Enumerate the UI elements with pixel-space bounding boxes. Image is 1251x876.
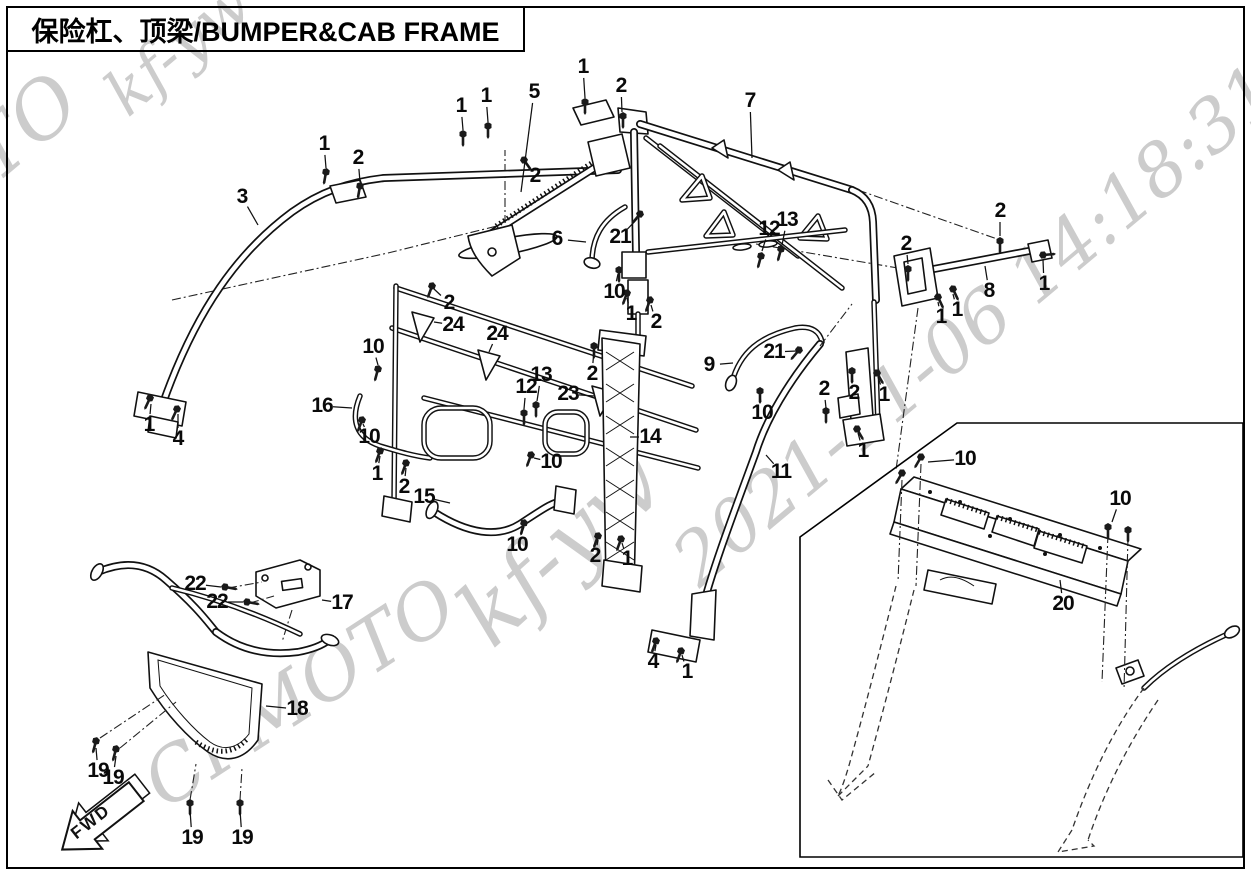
callout-1: 1 <box>626 302 637 326</box>
callout-3: 3 <box>237 185 248 209</box>
callout-10: 10 <box>362 335 383 359</box>
callout-8: 8 <box>984 279 995 303</box>
callout-11: 11 <box>771 460 791 484</box>
callout-1: 1 <box>481 84 492 108</box>
callout-2: 2 <box>651 310 662 334</box>
callout-22: 22 <box>184 572 205 596</box>
callout-10: 10 <box>358 425 379 449</box>
callout-1: 1 <box>622 547 633 571</box>
part-11-rear-pillar <box>648 304 852 662</box>
callout-2: 2 <box>590 544 601 568</box>
callout-2: 2 <box>849 381 860 405</box>
callout-21: 21 <box>763 340 784 364</box>
callout-14: 14 <box>639 425 660 449</box>
title-box: 保险杠、顶梁/BUMPER&CAB FRAME <box>6 6 525 52</box>
callout-1: 1 <box>879 383 890 407</box>
callout-10: 10 <box>603 280 624 304</box>
callout-17: 17 <box>331 591 352 615</box>
callout-21: 21 <box>609 225 630 249</box>
callout-2: 2 <box>901 232 912 256</box>
callout-10: 10 <box>954 447 975 471</box>
callout-16: 16 <box>311 394 332 418</box>
callout-15: 15 <box>413 485 434 509</box>
callout-10: 10 <box>751 401 772 425</box>
part-3-front-pillar <box>134 170 618 438</box>
callout-2: 2 <box>587 362 598 386</box>
callout-1: 1 <box>319 132 330 156</box>
callout-1: 1 <box>578 55 589 79</box>
callout-1: 1 <box>952 298 963 322</box>
callout-23: 23 <box>557 382 578 406</box>
parts-catalog-page: kf-ywCFMOTO2021-11-06 14:18:31kf-ywCFMOT… <box>0 0 1251 876</box>
part-7-roof-frame <box>622 124 884 446</box>
callout-1: 1 <box>1039 272 1050 296</box>
page-title: 保险杠、顶梁/BUMPER&CAB FRAME <box>32 10 500 49</box>
callout-20: 20 <box>1052 592 1073 616</box>
callout-6: 6 <box>552 227 563 251</box>
callout-10: 10 <box>540 450 561 474</box>
part-8-rear-bar <box>894 240 1052 306</box>
diagram-canvas: FWD <box>0 0 1251 876</box>
callout-19: 19 <box>181 826 202 850</box>
callout-9: 9 <box>704 353 715 377</box>
callout-5: 5 <box>529 80 540 104</box>
callout-24: 24 <box>442 313 463 337</box>
callout-2: 2 <box>995 199 1006 223</box>
callout-24: 24 <box>486 322 507 346</box>
callout-2: 2 <box>399 475 410 499</box>
callout-1: 1 <box>372 462 383 486</box>
callout-2: 2 <box>444 291 455 315</box>
callout-2: 2 <box>819 377 830 401</box>
callout-7: 7 <box>745 89 756 113</box>
callout-10: 10 <box>506 533 527 557</box>
callout-1: 1 <box>936 305 947 329</box>
callout-1: 1 <box>144 413 155 437</box>
callout-19: 19 <box>102 766 123 790</box>
callout-1: 1 <box>682 660 693 684</box>
callout-2: 2 <box>530 164 541 188</box>
callout-22: 22 <box>206 590 227 614</box>
callout-13: 13 <box>530 363 551 387</box>
callout-10: 10 <box>1109 487 1130 511</box>
callout-18: 18 <box>286 697 307 721</box>
callout-2: 2 <box>353 146 364 170</box>
callout-1: 1 <box>858 439 869 463</box>
callout-4: 4 <box>648 650 659 674</box>
callout-1: 1 <box>456 94 467 118</box>
callout-19: 19 <box>231 826 252 850</box>
callout-2: 2 <box>616 74 627 98</box>
callout-13: 13 <box>776 208 797 232</box>
inset-panel-20 <box>890 477 1141 606</box>
callout-4: 4 <box>173 427 184 451</box>
inset-box <box>800 423 1243 857</box>
